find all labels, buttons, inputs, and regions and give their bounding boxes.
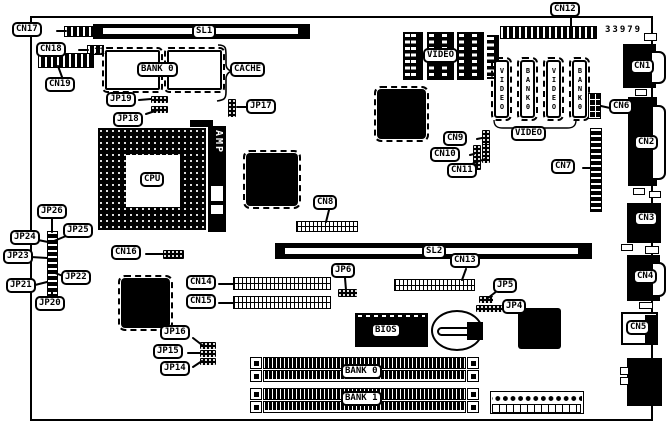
sl2-label: SL2 xyxy=(422,244,446,259)
cn5-label: CN5 xyxy=(626,320,650,335)
edge-tab xyxy=(645,246,659,254)
cn16-label: CN16 xyxy=(111,245,141,260)
motherboard-diagram: 11 AMP 33979 VIDEO BANK0 VIDEO BANK0 xyxy=(0,0,666,430)
simm-bank0-label: BANK 0 xyxy=(341,364,382,379)
video-ram-chip-2: BANK0 xyxy=(520,60,535,118)
bios-chip-pin1-stripe xyxy=(358,315,425,317)
battery-key xyxy=(437,327,471,336)
cn13-label: CN13 xyxy=(450,253,480,268)
video-dip-socket-1 xyxy=(403,32,423,80)
cn8-label: CN8 xyxy=(313,195,337,210)
video-ram-chip-1: VIDEO xyxy=(494,60,509,118)
video-ram-chip-2-text: BANK0 xyxy=(524,67,531,112)
jp14-label: JP14 xyxy=(160,361,190,376)
cn7-connector xyxy=(590,128,602,212)
amp-label-text: AMP xyxy=(210,130,224,190)
cn11-label: CN11 xyxy=(447,163,477,178)
simm-clip xyxy=(250,388,262,400)
edge-tab xyxy=(620,377,629,385)
jp20-jp26-jumper-strip xyxy=(47,231,58,300)
cn12-label: CN12 xyxy=(550,2,580,17)
cn4-label: CN4 xyxy=(633,269,657,284)
cn14-connector xyxy=(233,277,331,290)
simm-clip xyxy=(467,401,479,413)
chipset-qfp-2 xyxy=(377,89,426,139)
cn18-label: CN18 xyxy=(36,42,66,57)
sl1-label: SL1 xyxy=(192,24,216,39)
jp19-label: JP19 xyxy=(106,92,136,107)
video-ram-chip-3: VIDEO xyxy=(546,60,561,118)
edge-tab xyxy=(633,188,645,195)
amp-lever-1 xyxy=(211,186,223,201)
bios-label: BIOS xyxy=(371,323,401,338)
jp20-label: JP20 xyxy=(35,296,65,311)
battery-terminal xyxy=(467,322,483,340)
cn9-label: CN9 xyxy=(443,131,467,146)
jp25-label: JP25 xyxy=(63,223,93,238)
part-number: 33979 xyxy=(605,25,642,35)
jp17-label: JP17 xyxy=(246,99,276,114)
cn6-connector xyxy=(588,93,601,119)
jp5-label: JP5 xyxy=(493,278,517,293)
jp14-jumper xyxy=(200,358,216,365)
cn1-label: CN1 xyxy=(630,59,654,74)
jp6-jumper xyxy=(338,289,357,297)
cn15-connector xyxy=(233,296,331,309)
cn13-connector xyxy=(394,279,475,291)
video-ram-chip-1-text: VIDEO xyxy=(498,67,505,112)
edge-tab xyxy=(621,244,633,251)
jp22-label: JP22 xyxy=(61,270,91,285)
amp-lever-2 xyxy=(211,205,223,214)
simm-clip xyxy=(250,401,262,413)
jp16-jumper xyxy=(200,342,216,349)
cn11-connector xyxy=(482,144,490,163)
cn16-connector xyxy=(163,250,184,259)
jp16-label: JP16 xyxy=(160,325,190,340)
simm-clip xyxy=(250,357,262,369)
cn10-label: CN10 xyxy=(430,147,460,162)
simm-clip xyxy=(467,370,479,382)
simm-bank1-label: BANK 1 xyxy=(341,391,382,406)
jp21-label: JP21 xyxy=(6,278,36,293)
jp24-label: JP24 xyxy=(10,230,40,245)
video-group-label: VIDEO xyxy=(511,126,546,141)
bottom-edge-port xyxy=(627,358,662,406)
simm-clip xyxy=(467,357,479,369)
jp19-jumper xyxy=(151,96,168,103)
cn3-label: CN3 xyxy=(634,211,658,226)
cn8-connector xyxy=(296,221,358,232)
jp18-jumper xyxy=(151,106,168,113)
cache-bank0-label: BANK 0 xyxy=(137,62,178,77)
simm-clip xyxy=(250,370,262,382)
jp15-jumper xyxy=(200,350,216,357)
edge-tab xyxy=(649,191,661,198)
chipset-qfp-1 xyxy=(246,153,298,206)
pin1-marker: 11 xyxy=(94,47,105,57)
edge-tab xyxy=(639,302,653,309)
video-ram-chip-3-text: VIDEO xyxy=(550,67,557,112)
power-connector-sockets xyxy=(492,404,581,413)
power-connector-pins xyxy=(492,393,582,403)
video-ram-chip-4: BANK0 xyxy=(572,60,587,118)
io-controller-qfp xyxy=(121,278,170,328)
video-ram-chip-4-text: BANK0 xyxy=(576,67,583,112)
cn15-label: CN15 xyxy=(186,294,216,309)
cn19-label: CN19 xyxy=(45,77,75,92)
power-connector xyxy=(490,391,584,414)
cn6-label: CN6 xyxy=(609,99,633,114)
simm-clip xyxy=(467,388,479,400)
cn14-label: CN14 xyxy=(186,275,216,290)
cn17-label: CN17 xyxy=(12,22,42,37)
jp6-label: JP6 xyxy=(331,263,355,278)
cpu-label: CPU xyxy=(140,172,164,187)
video-dip-label: VIDEO xyxy=(423,48,458,63)
cn7-label: CN7 xyxy=(551,159,575,174)
cn2-label: CN2 xyxy=(634,135,658,150)
video-dip-socket-3 xyxy=(457,32,484,80)
jp17-jumper xyxy=(228,99,236,117)
cn12-connector xyxy=(500,26,597,39)
keyboard-controller-chip xyxy=(518,308,561,349)
edge-tab xyxy=(644,33,657,41)
jp15-label: JP15 xyxy=(153,344,183,359)
jp26-label: JP26 xyxy=(37,204,67,219)
edge-tab xyxy=(620,367,629,375)
jp5-jumper xyxy=(479,296,493,303)
jp4-label: JP4 xyxy=(502,299,526,314)
jp18-label: JP18 xyxy=(113,112,143,127)
cache-label: CACHE xyxy=(230,62,265,77)
jp23-label: JP23 xyxy=(3,249,33,264)
edge-tab xyxy=(635,89,647,96)
jp4-jumper xyxy=(476,305,502,312)
